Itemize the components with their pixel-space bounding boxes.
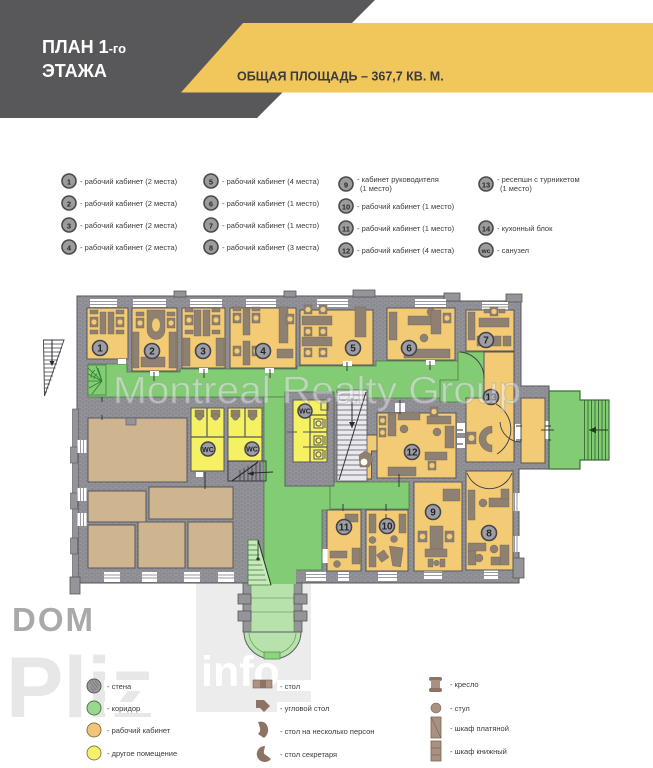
svg-text:wc: wc: [481, 248, 491, 255]
svg-text:- угловой стол: - угловой стол: [280, 704, 329, 713]
svg-text:6: 6: [209, 200, 213, 209]
svg-text:- кухонный блок: - кухонный блок: [497, 224, 553, 233]
svg-text:- рабочий кабинет: - рабочий кабинет: [107, 726, 171, 735]
svg-text:Montreal Realty Group: Montreal Realty Group: [113, 370, 521, 412]
svg-text:- рабочий кабинет (2 места): - рабочий кабинет (2 места): [80, 221, 178, 230]
svg-text:- стол на несколько персон: - стол на несколько персон: [280, 727, 374, 736]
svg-text:- рабочий кабинет (1 место): - рабочий кабинет (1 место): [222, 221, 320, 230]
svg-text:- коридор: - коридор: [107, 704, 140, 713]
svg-text:WC: WC: [246, 447, 258, 454]
svg-text:11: 11: [342, 225, 350, 234]
svg-text:12: 12: [406, 448, 418, 459]
svg-text:(1 место): (1 место): [500, 184, 532, 193]
svg-text:10: 10: [381, 522, 393, 533]
svg-text:1: 1: [67, 178, 71, 187]
svg-text:ЭТАЖА: ЭТАЖА: [42, 61, 107, 81]
svg-text:- рабочий кабинет (1 место): - рабочий кабинет (1 место): [357, 202, 455, 211]
svg-text:7: 7: [483, 336, 489, 347]
svg-text:- рабочий кабинет (4 места): - рабочий кабинет (4 места): [222, 177, 320, 186]
svg-text:9: 9: [344, 181, 348, 190]
svg-text:2: 2: [67, 200, 71, 209]
svg-text:5: 5: [350, 344, 356, 355]
svg-text:ОБЩАЯ ПЛОЩАДЬ – 367,7 КВ. М.: ОБЩАЯ ПЛОЩАДЬ – 367,7 КВ. М.: [237, 70, 444, 84]
svg-text:11: 11: [339, 523, 350, 534]
svg-text:7: 7: [209, 222, 213, 231]
svg-text:3: 3: [200, 347, 206, 358]
svg-text:9: 9: [430, 508, 436, 519]
svg-text:- кабинет руководителя: - кабинет руководителя: [357, 175, 439, 184]
svg-text:2: 2: [149, 347, 155, 358]
svg-text:- шкаф платяной: - шкаф платяной: [450, 724, 509, 733]
svg-text:3: 3: [67, 222, 71, 231]
svg-text:- стол: - стол: [280, 682, 300, 691]
svg-text:- санузел: - санузел: [497, 246, 529, 255]
svg-text:- рабочий кабинет (1 место): - рабочий кабинет (1 место): [357, 224, 455, 233]
svg-text:- рабочий кабинет (4 места): - рабочий кабинет (4 места): [357, 246, 455, 255]
svg-text:4: 4: [260, 347, 266, 358]
svg-text:- стена: - стена: [107, 682, 132, 691]
svg-text:- стул: - стул: [450, 704, 470, 713]
svg-text:- кресло: - кресло: [450, 680, 479, 689]
svg-text:8: 8: [209, 244, 213, 253]
svg-text:(1 место): (1 место): [360, 184, 392, 193]
svg-text:WC: WC: [202, 447, 214, 454]
svg-text:12: 12: [342, 247, 350, 256]
svg-text:- рабочий кабинет (1 место): - рабочий кабинет (1 место): [222, 199, 320, 208]
svg-text:- рабочий кабинет (2 места): - рабочий кабинет (2 места): [80, 243, 178, 252]
svg-text:- ресепшн с турникетом: - ресепшн с турникетом: [497, 175, 580, 184]
svg-text:1: 1: [97, 344, 103, 355]
svg-text:5: 5: [209, 178, 213, 187]
svg-text:13: 13: [482, 181, 490, 190]
svg-text:- рабочий кабинет (2 места): - рабочий кабинет (2 места): [80, 177, 178, 186]
svg-text:- шкаф книжный: - шкаф книжный: [450, 747, 507, 756]
svg-text:DOM: DOM: [12, 601, 95, 638]
svg-text:6: 6: [406, 344, 412, 355]
svg-text:- стол секретаря: - стол секретаря: [280, 750, 337, 759]
svg-text:8: 8: [486, 529, 492, 540]
svg-text:10: 10: [342, 203, 350, 212]
svg-text:- рабочий кабинет (3 места): - рабочий кабинет (3 места): [222, 243, 320, 252]
svg-text:14: 14: [482, 225, 491, 234]
svg-text:- рабочий кабинет (2 места): - рабочий кабинет (2 места): [80, 199, 178, 208]
svg-text:- другое помещение: - другое помещение: [107, 749, 177, 758]
